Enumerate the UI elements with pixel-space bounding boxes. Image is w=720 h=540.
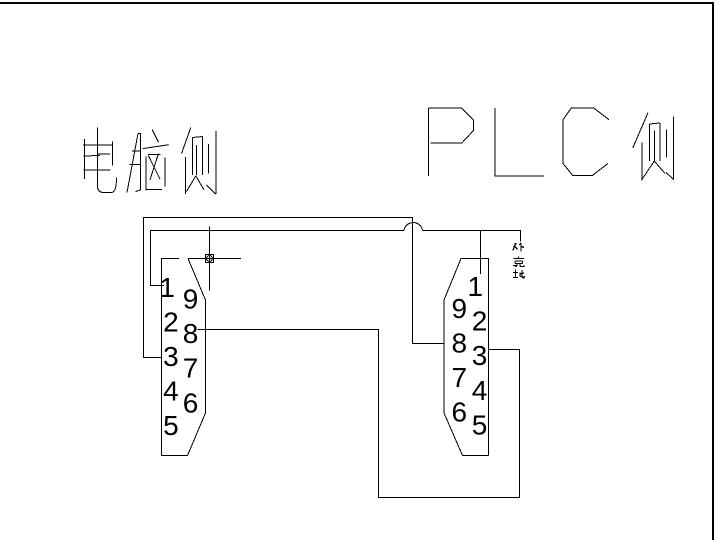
svg-text:6: 6 (183, 387, 199, 418)
svg-text:7: 7 (452, 362, 468, 393)
svg-text:2: 2 (472, 306, 488, 337)
svg-text:9: 9 (183, 284, 199, 315)
svg-text:2: 2 (163, 306, 179, 337)
svg-text:6: 6 (452, 397, 468, 428)
svg-text:4: 4 (472, 375, 488, 406)
svg-text:1: 1 (468, 271, 484, 302)
svg-text:4: 4 (163, 376, 179, 407)
svg-text:8: 8 (452, 327, 468, 358)
svg-text:7: 7 (183, 353, 199, 384)
svg-text:9: 9 (452, 293, 468, 324)
svg-text:8: 8 (183, 318, 199, 349)
svg-text:1: 1 (159, 272, 175, 303)
svg-text:5: 5 (472, 409, 488, 440)
svg-text:5: 5 (163, 410, 179, 441)
svg-text:3: 3 (163, 341, 179, 372)
svg-text:3: 3 (472, 340, 488, 371)
